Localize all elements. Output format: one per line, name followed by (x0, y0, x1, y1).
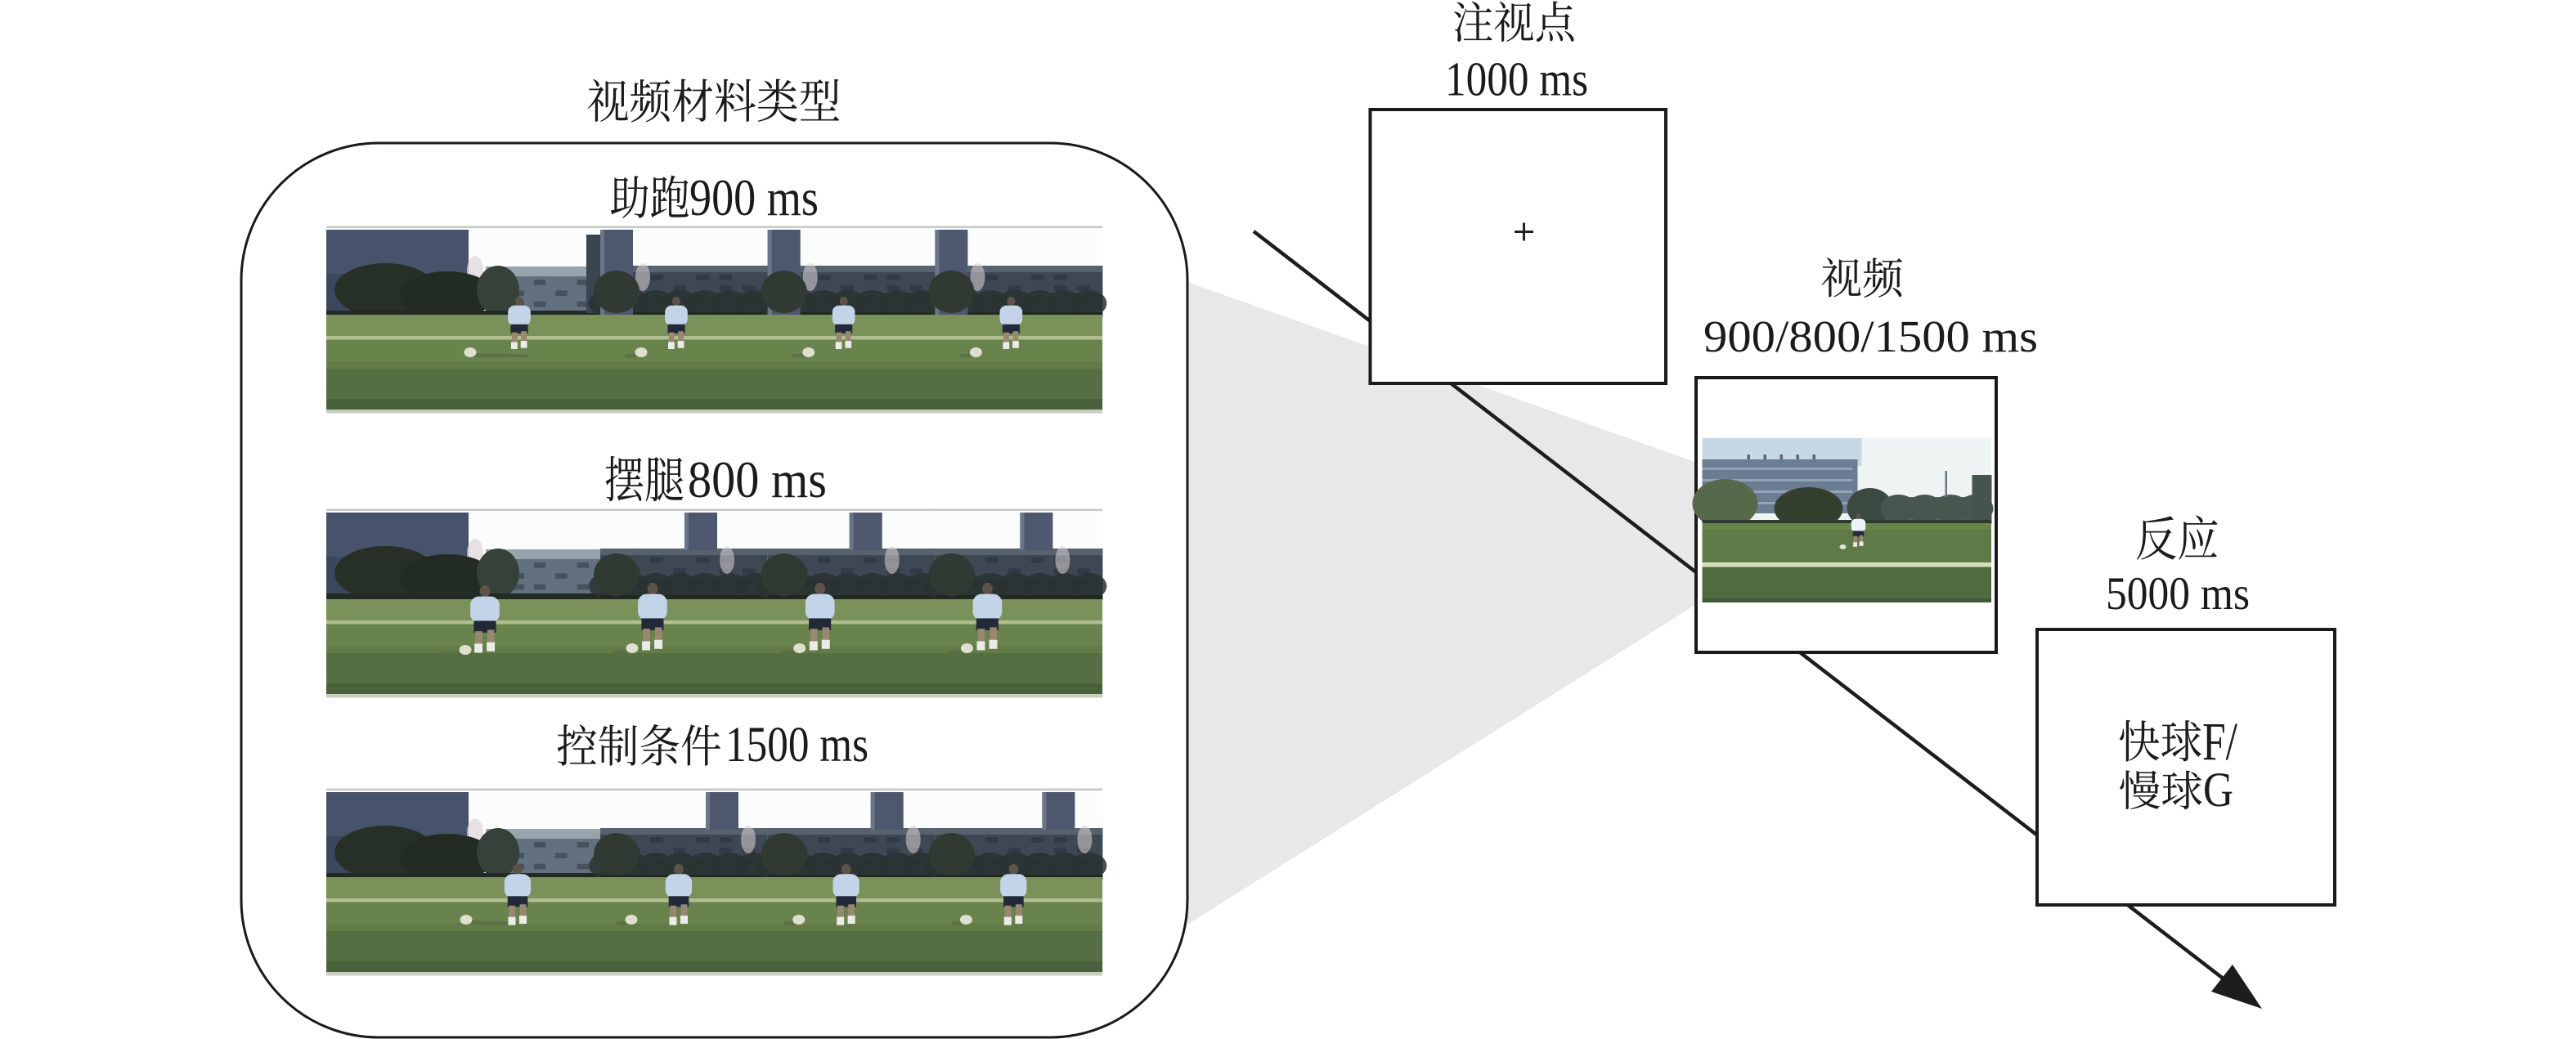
svg-text:5000 ms: 5000 ms (2106, 568, 2250, 620)
svg-text:800 ms: 800 ms (688, 451, 827, 508)
svg-text:900 ms: 900 ms (689, 169, 819, 226)
svg-text:1500 ms: 1500 ms (725, 718, 868, 773)
svg-text:1000 ms: 1000 ms (1445, 52, 1588, 106)
svg-text:G: G (2203, 763, 2233, 817)
svg-text:900/800/1500 ms: 900/800/1500 ms (1703, 312, 2038, 362)
